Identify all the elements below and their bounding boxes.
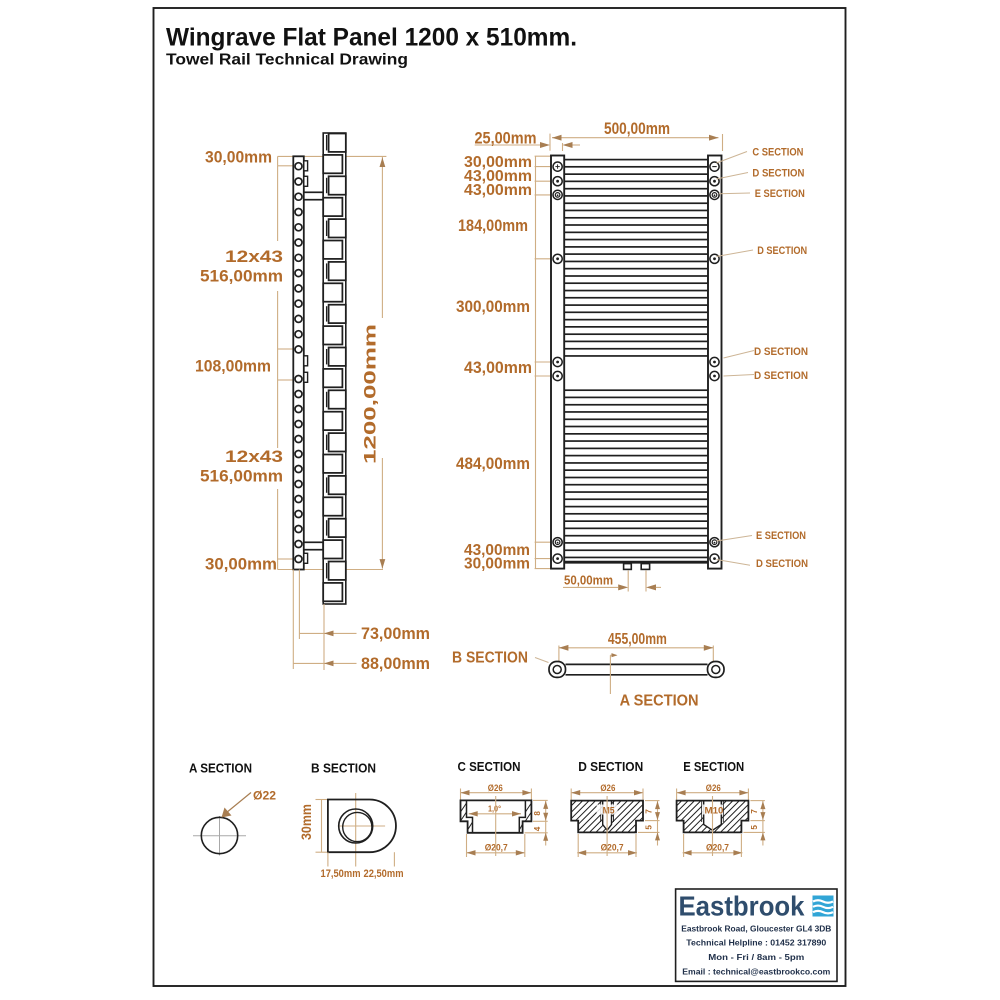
- svg-text:500,00mm: 500,00mm: [604, 120, 670, 138]
- svg-text:108,00mm: 108,00mm: [195, 358, 271, 376]
- svg-text:M5: M5: [603, 806, 615, 816]
- svg-text:D SECTION: D SECTION: [752, 168, 804, 180]
- svg-text:30,00mm: 30,00mm: [205, 555, 277, 573]
- svg-text:D SECTION: D SECTION: [757, 245, 807, 257]
- svg-text:C SECTION: C SECTION: [458, 760, 521, 774]
- svg-text:43,00mm: 43,00mm: [464, 359, 532, 377]
- svg-text:Ø20,7: Ø20,7: [706, 842, 729, 852]
- svg-text:7: 7: [750, 809, 759, 814]
- svg-text:1200,00mm: 1200,00mm: [362, 324, 380, 464]
- svg-text:5: 5: [645, 825, 654, 830]
- svg-text:E SECTION: E SECTION: [683, 760, 744, 774]
- svg-text:Ø22: Ø22: [253, 789, 276, 803]
- svg-text:300,00mm: 300,00mm: [456, 298, 530, 316]
- svg-text:D SECTION: D SECTION: [578, 760, 643, 774]
- svg-text:M10: M10: [705, 806, 724, 816]
- svg-text:Eastbrook: Eastbrook: [679, 891, 806, 922]
- svg-text:184,00mm: 184,00mm: [458, 217, 528, 235]
- svg-text:4: 4: [533, 826, 542, 831]
- svg-text:Ø26: Ø26: [600, 783, 615, 793]
- svg-text:22,50mm: 22,50mm: [364, 868, 404, 880]
- svg-text:12x43: 12x43: [225, 248, 283, 266]
- svg-text:12x43: 12x43: [225, 448, 283, 466]
- svg-text:Mon - Fri / 8am - 5pm: Mon - Fri / 8am - 5pm: [708, 952, 804, 962]
- svg-text:25,00mm: 25,00mm: [475, 130, 537, 148]
- svg-text:B SECTION: B SECTION: [311, 762, 376, 776]
- svg-text:30,00mm: 30,00mm: [464, 556, 530, 573]
- svg-text:7: 7: [645, 809, 654, 814]
- svg-text:516,00mm: 516,00mm: [200, 468, 283, 486]
- svg-text:A SECTION: A SECTION: [189, 762, 252, 776]
- svg-text:A SECTION: A SECTION: [620, 693, 699, 710]
- svg-text:484,00mm: 484,00mm: [456, 455, 530, 473]
- svg-text:516,00mm: 516,00mm: [200, 268, 283, 286]
- svg-text:D SECTION: D SECTION: [754, 370, 808, 382]
- svg-text:30,00mm: 30,00mm: [205, 148, 272, 166]
- svg-text:Technical Helpline : 01452 317: Technical Helpline : 01452 317890: [686, 938, 826, 948]
- svg-text:E SECTION: E SECTION: [756, 530, 806, 542]
- svg-text:455,00mm: 455,00mm: [608, 631, 667, 648]
- svg-text:17,50mm: 17,50mm: [321, 868, 361, 880]
- svg-text:Eastbrook Road, Gloucester GL4: Eastbrook Road, Gloucester GL4 3DB: [681, 924, 831, 934]
- svg-text:B SECTION: B SECTION: [452, 650, 528, 667]
- svg-text:Ø20,7: Ø20,7: [601, 842, 624, 852]
- svg-text:43,00mm: 43,00mm: [464, 182, 532, 199]
- svg-text:73,00mm: 73,00mm: [361, 625, 430, 643]
- svg-text:1,0°: 1,0°: [488, 804, 502, 814]
- svg-text:Towel Rail Technical Drawing: Towel Rail Technical Drawing: [166, 52, 408, 69]
- svg-text:88,00mm: 88,00mm: [361, 655, 430, 673]
- svg-text:30mm: 30mm: [299, 804, 314, 840]
- svg-text:Wingrave Flat Panel 1200 x 510: Wingrave Flat Panel 1200 x 510mm.: [166, 25, 577, 52]
- svg-text:E SECTION: E SECTION: [755, 188, 805, 200]
- svg-text:Ø26: Ø26: [488, 783, 503, 793]
- svg-text:Email : technical@eastbrookco.: Email : technical@eastbrookco.com: [682, 967, 830, 977]
- svg-text:8: 8: [533, 811, 542, 816]
- svg-text:50,00mm: 50,00mm: [564, 573, 613, 588]
- svg-text:Ø26: Ø26: [706, 783, 721, 793]
- svg-text:5: 5: [750, 825, 759, 830]
- svg-text:C SECTION: C SECTION: [752, 147, 803, 159]
- svg-text:D SECTION: D SECTION: [756, 558, 808, 570]
- svg-text:D SECTION: D SECTION: [754, 346, 808, 358]
